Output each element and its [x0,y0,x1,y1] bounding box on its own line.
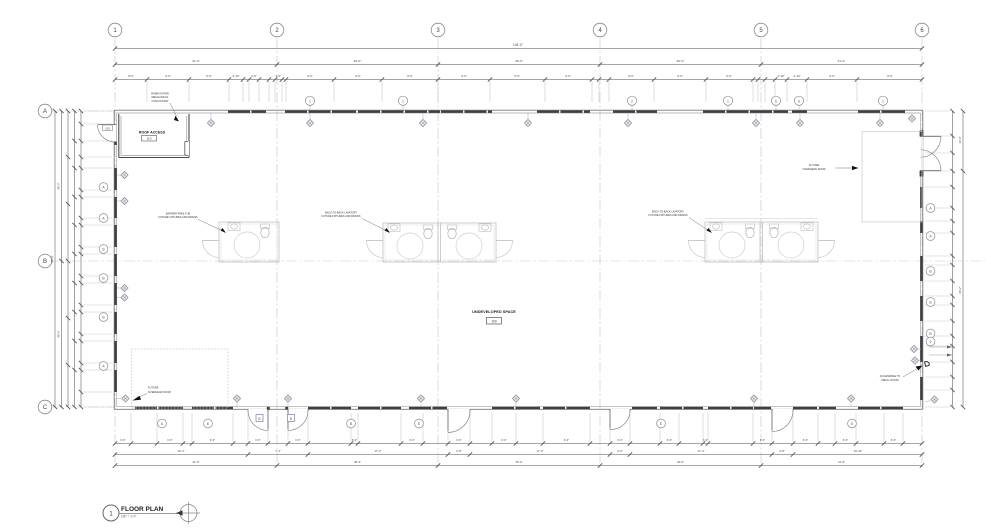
svg-text:17'-4": 17'-4" [697,449,704,453]
svg-text:6'-0": 6'-0" [803,438,808,442]
svg-text:15'-10": 15'-10" [854,449,863,453]
svg-text:2'-10": 2'-10" [793,74,800,78]
svg-text:10'-0": 10'-0" [958,136,962,143]
svg-text:FUTURE FIXTURES AND DRAINS: FUTURE FIXTURES AND DRAINS [321,215,361,218]
svg-text:B: B [290,417,292,421]
svg-text:6'-0": 6'-0" [501,438,506,442]
svg-text:6'-0": 6'-0" [564,438,569,442]
svg-text:6'-0": 6'-0" [165,74,171,78]
svg-text:41'-0": 41'-0" [838,59,846,63]
svg-text:49'-0": 49'-0" [57,330,61,337]
svg-text:UNDEVELOPED SPACE: UNDEVELOPED SPACE [472,309,516,314]
svg-text:6'-0": 6'-0" [843,438,848,442]
svg-text:2'-6": 2'-6" [251,74,257,78]
svg-text:6'-0": 6'-0" [210,438,215,442]
svg-text:6: 6 [930,340,932,344]
svg-text:6'-0": 6'-0" [295,438,300,442]
svg-text:2'-8": 2'-8" [456,449,462,453]
svg-text:1: 1 [309,100,311,104]
svg-text:6'-0": 6'-0" [565,74,571,78]
svg-text:16'-4": 16'-4" [177,449,184,453]
svg-text:40'-0": 40'-0" [354,59,362,63]
svg-text:8'-0": 8'-0" [128,74,134,78]
svg-text:6'-0": 6'-0" [407,74,413,78]
svg-text:6'-0": 6'-0" [617,438,622,442]
svg-text:41'-0": 41'-0" [192,59,200,63]
svg-text:OVERHEAD DOOR: OVERHEAD DOOR [148,390,171,394]
svg-text:6'-0": 6'-0" [726,74,732,78]
svg-text:CONSULTANT: CONSULTANT [151,99,169,103]
svg-text:6: 6 [775,100,777,104]
svg-text:49'-0": 49'-0" [57,182,61,189]
svg-text:6: 6 [798,100,800,104]
svg-text:B: B [258,417,260,421]
svg-text:6'-0": 6'-0" [760,438,765,442]
svg-text:6'-0": 6'-0" [255,438,260,442]
svg-text:6'-0": 6'-0" [456,438,461,442]
svg-text:2: 2 [631,100,633,104]
svg-text:6'-0": 6'-0" [887,74,893,78]
svg-text:1/8" = 1'-0": 1/8" = 1'-0" [121,515,137,519]
svg-text:103: 103 [105,126,110,130]
svg-text:6'-0": 6'-0" [891,438,896,442]
svg-text:FUTURE: FUTURE [809,163,820,167]
svg-text:6'-0": 6'-0" [667,438,672,442]
svg-text:6'-0": 6'-0" [677,74,683,78]
svg-text:RAMP AS PER: RAMP AS PER [151,92,169,96]
svg-text:FUTURE: FUTURE [148,386,159,390]
svg-text:40'-0": 40'-0" [354,460,361,464]
svg-text:BACK-TO-BACK LAVATORY: BACK-TO-BACK LAVATORY [652,211,684,214]
svg-text:6'-0": 6'-0" [307,74,313,78]
svg-text:1: 1 [402,100,404,104]
svg-text:FLOOR PLAN: FLOOR PLAN [121,506,164,513]
svg-text:6'-0": 6'-0" [514,74,520,78]
svg-text:BACK-TO-BACK LAVATORY: BACK-TO-BACK LAVATORY [325,212,357,215]
svg-text:17'-2": 17'-2" [536,449,543,453]
svg-text:100: 100 [491,320,497,324]
svg-text:1: 1 [727,100,729,104]
svg-text:69'-2": 69'-2" [958,286,962,293]
svg-text:40'-0": 40'-0" [677,59,685,63]
svg-text:FUTURE FIXTURES AND DRAINS: FUTURE FIXTURES AND DRAINS [158,216,198,219]
svg-text:98'-0": 98'-0" [50,255,54,263]
svg-text:BARRIER-FREE TUB: BARRIER-FREE TUB [166,213,191,216]
svg-text:FUTURE FIXTURES AND DRAINS: FUTURE FIXTURES AND DRAINS [648,214,688,217]
svg-text:2'-10": 2'-10" [777,74,784,78]
svg-text:A: A [43,109,47,115]
svg-text:2'-8": 2'-8" [779,449,785,453]
svg-text:ACCESSIBLE TO: ACCESSIBLE TO [880,374,901,378]
svg-text:17'-2": 17'-2" [374,449,381,453]
svg-text:1: 1 [882,100,884,104]
svg-text:MECH. ROOM: MECH. ROOM [881,378,898,382]
svg-text:41'-0": 41'-0" [838,460,845,464]
svg-text:6'-0": 6'-0" [628,74,634,78]
svg-text:6'-0": 6'-0" [355,74,361,78]
svg-text:ROOF ACCESS: ROOF ACCESS [139,131,166,135]
svg-text:B: B [43,259,47,265]
svg-text:5'-6": 5'-6" [206,74,212,78]
svg-text:6'-0": 6'-0" [829,74,835,78]
svg-text:6'-0": 6'-0" [461,74,467,78]
svg-text:6'-0": 6'-0" [120,438,125,442]
svg-text:C: C [43,405,48,411]
svg-text:2'-10": 2'-10" [232,74,239,78]
svg-text:144'-0": 144'-0" [513,43,523,47]
svg-text:40'-0": 40'-0" [515,460,522,464]
svg-text:6'-0": 6'-0" [409,438,414,442]
svg-text:7'-4": 7'-4" [275,449,281,453]
svg-text:41'-0": 41'-0" [192,460,199,464]
svg-text:110: 110 [147,137,152,141]
svg-text:6'-0": 6'-0" [167,438,172,442]
svg-text:40'-0": 40'-0" [515,59,523,63]
svg-text:OVERHEAD DOOR: OVERHEAD DOOR [802,167,825,171]
svg-text:MECHANICAL: MECHANICAL [151,95,169,99]
svg-text:40'-0": 40'-0" [677,460,684,464]
svg-text:6'-0": 6'-0" [703,438,708,442]
svg-text:1'-6": 1'-6" [275,74,281,78]
svg-text:6'-0": 6'-0" [352,438,357,442]
svg-text:2'-6": 2'-6" [617,449,623,453]
